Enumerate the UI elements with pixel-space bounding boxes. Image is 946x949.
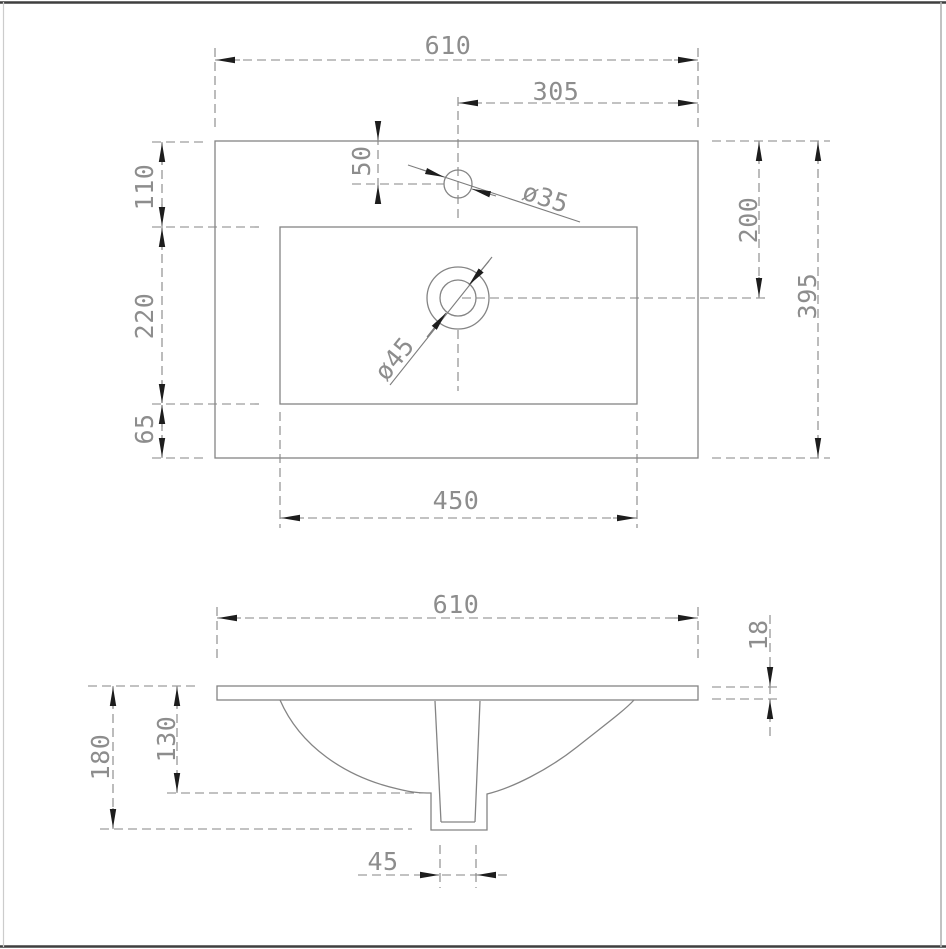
dim-bowl-depth-label: 130: [152, 716, 181, 763]
dim-drain-width-label: 45: [367, 847, 398, 876]
dim-plan-overall-width-label: 610: [425, 31, 472, 60]
bowl-profile: [280, 700, 634, 830]
dim-faucet-diameter-label: ø35: [519, 177, 572, 219]
dim-section-overall-width-label: 610: [433, 590, 480, 619]
slab-outline: [217, 686, 698, 700]
dim-slab-thickness-label: 18: [744, 619, 773, 650]
drawing-canvas: 610 305 50 110 220 65 200: [0, 0, 946, 949]
countertop-outline: [215, 141, 698, 458]
section-view-geometry: [217, 686, 698, 830]
dim-front-deck-label: 65: [130, 413, 159, 444]
plan-view-geometry: [215, 141, 698, 458]
dim-faucet-offset-label: 305: [533, 77, 580, 106]
sheet-frame: [0, 2, 946, 947]
dim-drain-offset-label: 200: [734, 197, 763, 244]
sink-technical-drawing: 610 305 50 110 220 65 200: [0, 0, 946, 949]
dim-plan-overall-depth-label: 395: [793, 273, 822, 320]
dim-basin-width-label: 450: [433, 486, 480, 515]
dim-faucet-depth-label: 50: [347, 145, 376, 176]
dim-basin-depth-label: 220: [130, 293, 159, 340]
plan-view-dimensions: 610 305 50 110 220 65 200: [130, 31, 830, 528]
section-view-dimensions: 610 18 180 130 45: [86, 590, 778, 888]
dim-overall-height-label: 180: [86, 734, 115, 781]
dim-back-deck-label: 110: [130, 164, 159, 211]
dim-drain-diameter-label: ø45: [368, 331, 420, 386]
drain-pipe: [435, 701, 480, 822]
